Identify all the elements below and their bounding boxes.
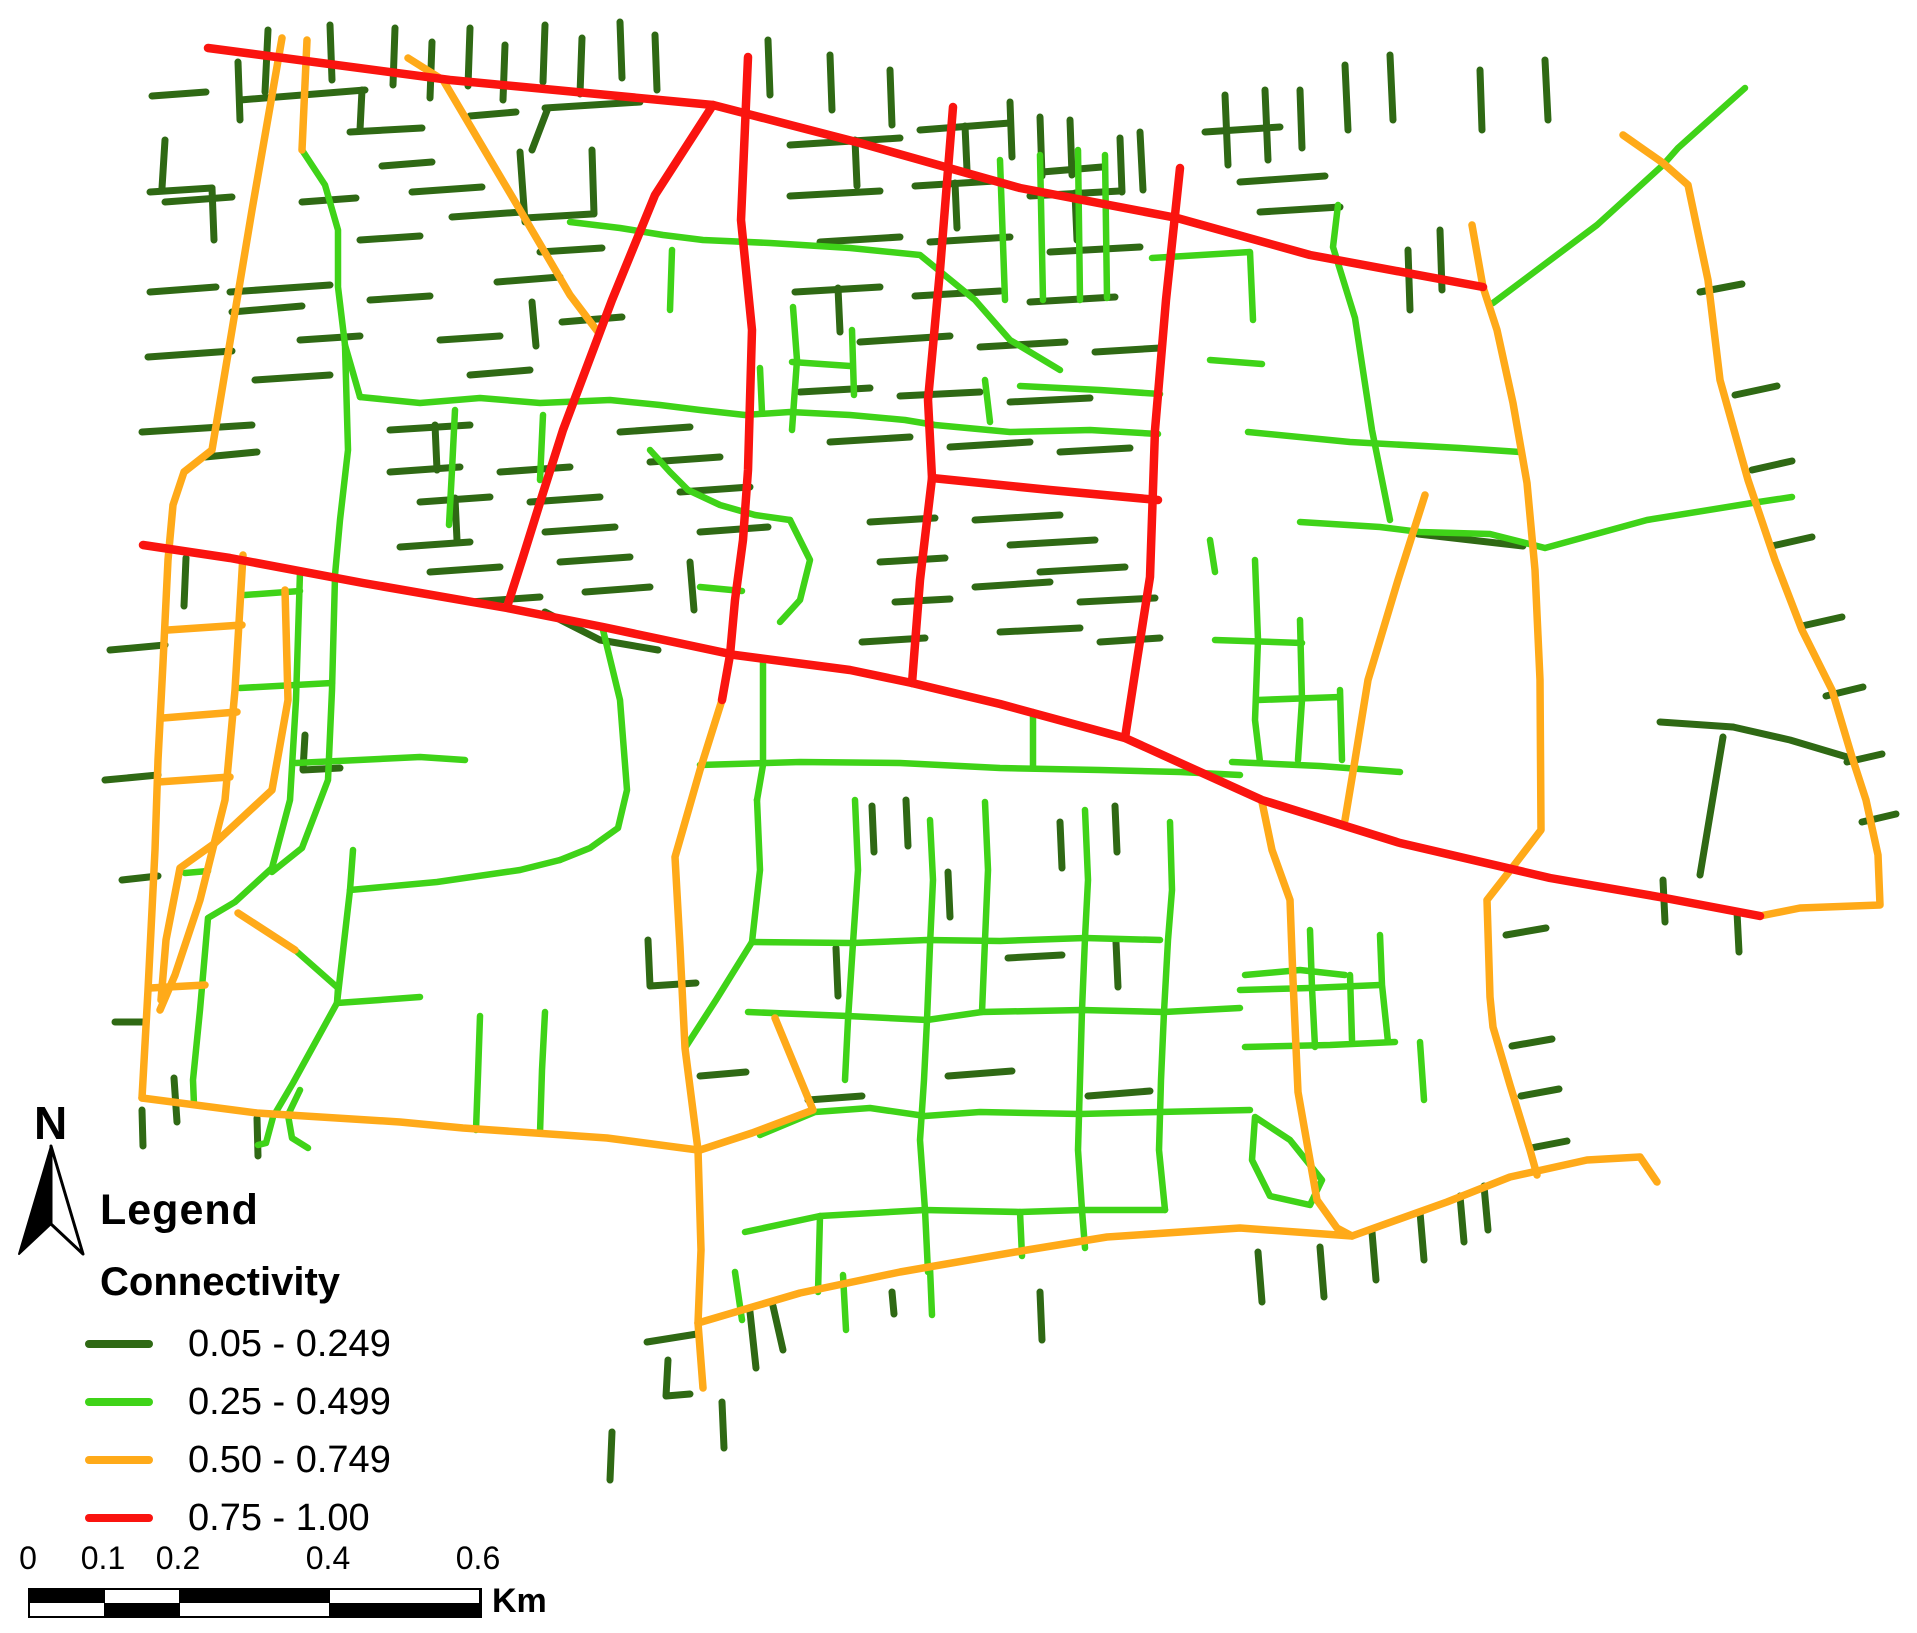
road-segment-c1 bbox=[950, 442, 1030, 447]
legend-swatch-lightgreen bbox=[85, 1398, 153, 1406]
road-segment-c1 bbox=[142, 1110, 143, 1146]
legend-item-class1: 0.05 - 0.249 bbox=[85, 1316, 545, 1374]
road-segment-c1 bbox=[948, 1071, 1012, 1076]
road-segment-c1 bbox=[1205, 127, 1280, 132]
road-segment-c1 bbox=[700, 527, 768, 532]
road-segment-c1 bbox=[1060, 822, 1062, 868]
road-segment-c1 bbox=[1040, 567, 1125, 572]
road-segment-c1 bbox=[360, 236, 420, 240]
road-segment-c1 bbox=[975, 582, 1050, 587]
road-segment-c1 bbox=[838, 288, 840, 332]
road-segment-c1 bbox=[948, 872, 950, 917]
road-segment-c1 bbox=[700, 1072, 746, 1076]
road-segment-c1 bbox=[585, 587, 650, 592]
road-segment-c1 bbox=[110, 645, 165, 650]
road-segment-c1 bbox=[610, 1432, 612, 1480]
road-segment-c1 bbox=[468, 28, 470, 86]
road-segment-c1 bbox=[830, 437, 910, 442]
legend-swatch-red bbox=[85, 1514, 153, 1522]
scale-tick-label: 0.4 bbox=[306, 1540, 350, 1577]
road-segment-c1 bbox=[1320, 1247, 1324, 1297]
road-segment-c1 bbox=[497, 277, 560, 282]
road-segment-c1 bbox=[500, 467, 570, 472]
road-segment-c2 bbox=[1340, 690, 1342, 760]
road-segment-c2 bbox=[760, 368, 762, 412]
road-segment-c3 bbox=[168, 625, 242, 630]
road-segment-c1 bbox=[1484, 1186, 1488, 1230]
road-segment-c1 bbox=[150, 287, 216, 292]
legend-subtitle: Connectivity bbox=[100, 1260, 340, 1305]
road-segment-c1 bbox=[360, 90, 362, 130]
road-segment-c1 bbox=[1258, 1252, 1262, 1302]
road-segment-c1 bbox=[800, 388, 870, 392]
road-segment-c1 bbox=[1040, 1292, 1042, 1340]
scale-bar: 00.10.20.40.6 Km bbox=[0, 1540, 620, 1630]
road-segment-c1 bbox=[975, 515, 1060, 520]
road-segment-c2 bbox=[930, 1268, 932, 1315]
road-segment-c2 bbox=[1105, 155, 1107, 298]
road-segment-c1 bbox=[1008, 955, 1062, 958]
road-segment-c1 bbox=[830, 55, 832, 110]
road-segment-c1 bbox=[1042, 167, 1102, 172]
road-segment-c2 bbox=[1420, 1042, 1424, 1100]
road-segment-c1 bbox=[330, 25, 332, 80]
road-segment-c1 bbox=[1737, 912, 1739, 952]
road-segment-c1 bbox=[435, 425, 437, 470]
road-segment-c1 bbox=[162, 140, 165, 188]
road-segment-c1 bbox=[152, 92, 206, 96]
road-segment-c1 bbox=[165, 197, 232, 202]
connectivity-map: N Legend Connectivity 0.05 - 0.249 0.25 … bbox=[0, 0, 1917, 1633]
road-segment-c1 bbox=[820, 237, 900, 242]
road-segment-c2 bbox=[818, 1216, 820, 1292]
road-segment-c1 bbox=[580, 38, 582, 94]
road-segment-c1 bbox=[1095, 348, 1160, 352]
road-segment-c1 bbox=[350, 128, 422, 132]
road-segment-c1 bbox=[836, 948, 838, 996]
road-segment-c1 bbox=[1372, 1232, 1376, 1280]
road-segment-c1 bbox=[470, 112, 516, 116]
road-segment-c2 bbox=[1255, 560, 1260, 762]
road-segment-c1 bbox=[1120, 138, 1122, 192]
legend-item-class2: 0.25 - 0.499 bbox=[85, 1374, 545, 1432]
road-segment-c2 bbox=[540, 415, 543, 480]
road-segment-c1 bbox=[855, 140, 857, 186]
road-segment-c1 bbox=[906, 800, 908, 846]
road-segment-c1 bbox=[1345, 65, 1348, 130]
road-segment-c1 bbox=[1260, 207, 1340, 212]
road-segment-c1 bbox=[503, 45, 505, 100]
road-segment-c1 bbox=[543, 25, 545, 82]
road-segment-c1 bbox=[257, 1118, 258, 1156]
road-segment-c1 bbox=[370, 296, 430, 300]
road-segment-c2 bbox=[1040, 155, 1043, 300]
road-segment-c1 bbox=[655, 35, 657, 90]
road-segment-c1 bbox=[1050, 247, 1140, 252]
road-segment-c1 bbox=[1390, 55, 1393, 120]
scale-tick-label: 0 bbox=[19, 1540, 37, 1577]
road-segment-c1 bbox=[545, 527, 615, 532]
road-segment-c1 bbox=[400, 542, 470, 547]
road-segment-c1 bbox=[265, 30, 268, 92]
scale-bar-segment bbox=[330, 1590, 480, 1603]
road-segment-c1 bbox=[105, 775, 158, 780]
legend-swatch-darkgreen bbox=[85, 1340, 153, 1348]
legend-item-label: 0.50 - 0.749 bbox=[188, 1439, 391, 1482]
road-segment-c1 bbox=[440, 336, 500, 340]
road-segment-c1 bbox=[1660, 722, 1733, 727]
scale-tick-label: 0.2 bbox=[156, 1540, 200, 1577]
road-segment-c1 bbox=[790, 191, 880, 196]
road-segment-c1 bbox=[1100, 638, 1160, 642]
legend-item-label: 0.25 - 0.499 bbox=[188, 1381, 391, 1424]
road-segment-c1 bbox=[880, 558, 945, 562]
road-segment-c2 bbox=[1078, 150, 1080, 300]
road-segment-c2 bbox=[670, 250, 672, 310]
road-segment-c1 bbox=[255, 375, 330, 380]
road-segment-c3 bbox=[158, 777, 230, 782]
road-segment-c2 bbox=[245, 591, 300, 595]
road-segment-c1 bbox=[890, 70, 892, 125]
road-segment-c1 bbox=[722, 1402, 724, 1448]
road-segment-c1 bbox=[300, 336, 360, 340]
road-segment-c2 bbox=[792, 362, 850, 366]
scale-tick-label: 0.6 bbox=[456, 1540, 500, 1577]
road-segment-c1 bbox=[1545, 60, 1548, 120]
road-segment-c1 bbox=[620, 427, 690, 432]
road-segment-c1 bbox=[532, 302, 536, 346]
road-segment-c1 bbox=[1088, 1091, 1150, 1096]
road-segment-c1 bbox=[1116, 942, 1118, 987]
road-segment-c1 bbox=[592, 150, 594, 214]
road-segment-c1 bbox=[452, 212, 522, 217]
scale-tick-label: 0.1 bbox=[81, 1540, 125, 1577]
road-segment-c2 bbox=[925, 1210, 928, 1272]
road-segment-c1 bbox=[1010, 540, 1095, 545]
road-segment-c2 bbox=[476, 1016, 480, 1130]
road-segment-c1 bbox=[390, 425, 470, 430]
road-segment-c1 bbox=[1140, 132, 1143, 190]
road-segment-c1 bbox=[238, 62, 240, 120]
north-arrow-icon bbox=[12, 1142, 90, 1264]
road-segment-c1 bbox=[1060, 448, 1130, 452]
road-segment-c3 bbox=[150, 985, 205, 988]
road-segment-c1 bbox=[184, 558, 186, 606]
scale-bar-segment bbox=[330, 1603, 480, 1616]
road-segment-c1 bbox=[900, 392, 980, 396]
scale-bar-segment bbox=[105, 1603, 180, 1616]
road-segment-c1 bbox=[1000, 628, 1080, 632]
scale-bar-segment bbox=[180, 1590, 330, 1603]
road-segment-c1 bbox=[430, 567, 500, 572]
legend-item-label: 0.75 - 1.00 bbox=[188, 1497, 370, 1540]
road-segment-c1 bbox=[690, 562, 694, 610]
road-segment-c1 bbox=[1408, 250, 1410, 310]
scale-bar-segment bbox=[105, 1590, 180, 1603]
scale-bar-segment bbox=[30, 1590, 105, 1603]
scale-bar-body bbox=[28, 1588, 482, 1618]
road-segment-c1 bbox=[1300, 90, 1302, 148]
road-segment-c1 bbox=[455, 498, 457, 540]
road-segment-c1 bbox=[1115, 806, 1117, 852]
road-segment-c1 bbox=[1480, 70, 1482, 130]
road-segment-c1 bbox=[382, 162, 432, 166]
road-segment-c1 bbox=[1010, 102, 1012, 157]
road-segment-c2 bbox=[1258, 697, 1340, 700]
road-segment-c1 bbox=[1420, 1212, 1424, 1260]
scale-bar-segment bbox=[180, 1603, 330, 1616]
road-segment-c1 bbox=[560, 557, 630, 562]
road-segment-c1 bbox=[965, 126, 967, 170]
road-segment-c1 bbox=[540, 248, 602, 252]
road-segment-c1 bbox=[872, 806, 874, 852]
road-segment-c2 bbox=[1215, 640, 1302, 643]
legend-swatch-orange bbox=[85, 1456, 153, 1464]
road-segment-c1 bbox=[1010, 398, 1090, 402]
legend-item-class3: 0.50 - 0.749 bbox=[85, 1432, 545, 1490]
road-segment-c1 bbox=[915, 291, 1000, 296]
scale-bar-unit: Km bbox=[492, 1582, 547, 1621]
scale-bar-segment bbox=[30, 1603, 105, 1616]
road-segment-c1 bbox=[768, 40, 770, 95]
road-segment-c1 bbox=[412, 187, 482, 192]
road-segment-c1 bbox=[892, 1292, 894, 1314]
road-segment-c1 bbox=[525, 214, 592, 218]
road-segment-c1 bbox=[470, 370, 530, 375]
road-segment-c1 bbox=[1460, 1196, 1464, 1242]
legend-title: Legend bbox=[100, 1186, 259, 1235]
legend-items: 0.05 - 0.249 0.25 - 0.499 0.50 - 0.749 0… bbox=[85, 1316, 545, 1548]
road-segment-c1 bbox=[955, 183, 957, 228]
road-segment-c1 bbox=[620, 22, 622, 78]
road-segment-c2 bbox=[852, 330, 854, 395]
legend-item-label: 0.05 - 0.249 bbox=[188, 1323, 391, 1366]
road-segment-c1 bbox=[808, 1096, 862, 1100]
road-segment-c2 bbox=[1210, 360, 1262, 364]
road-segment-c2 bbox=[1350, 975, 1352, 1040]
